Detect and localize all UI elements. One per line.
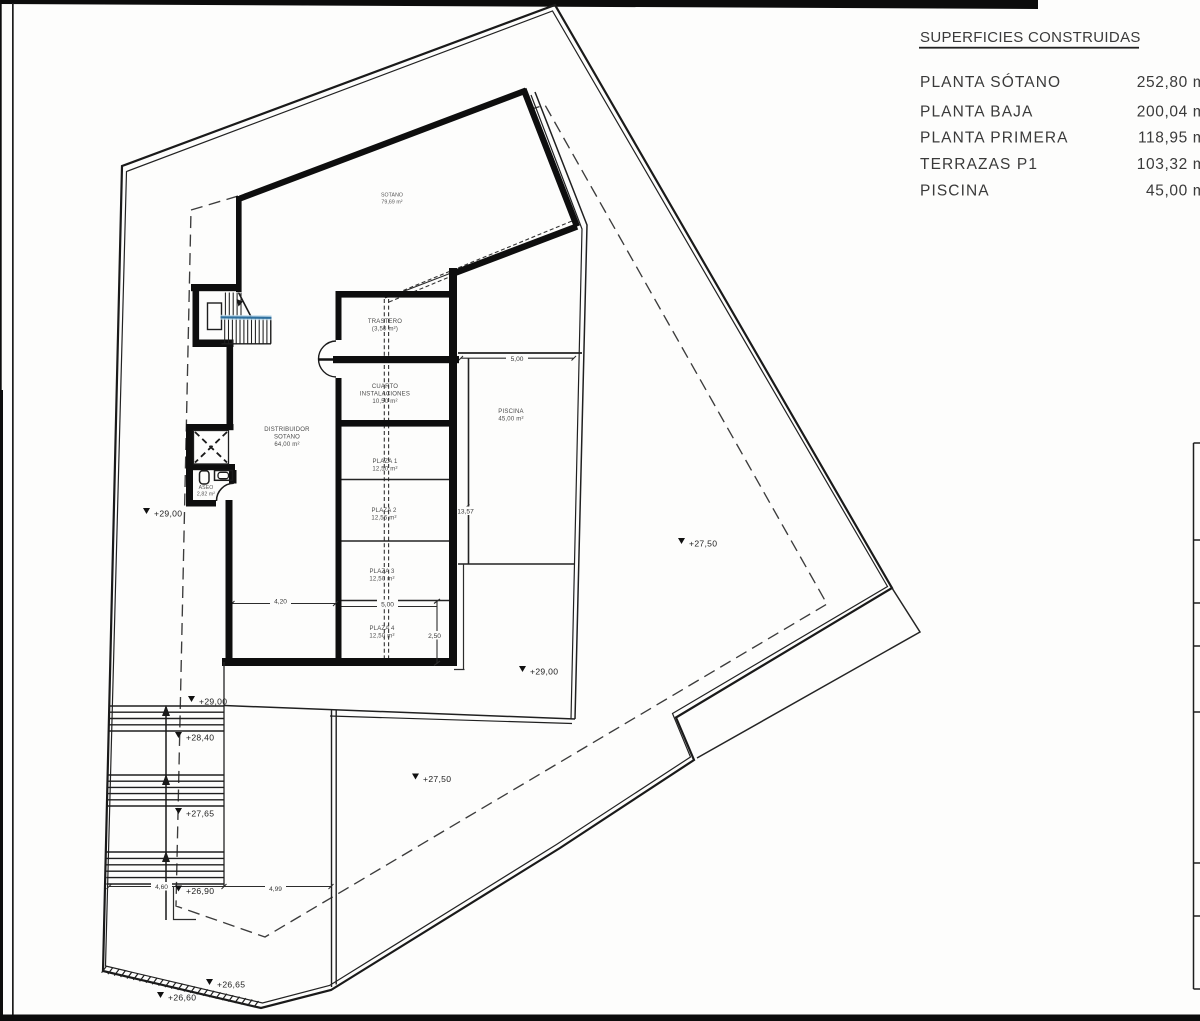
svg-text:45,00 m²: 45,00 m² [1146, 183, 1200, 200]
svg-text:+29,00: +29,00 [154, 509, 182, 519]
svg-text:12,50 m²: 12,50 m² [369, 577, 394, 583]
svg-text:PLANTA PRIMERA: PLANTA PRIMERA [920, 130, 1069, 147]
svg-text:PISCINA: PISCINA [498, 409, 523, 415]
svg-text:4,60: 4,60 [155, 884, 168, 891]
svg-text:PISCINA: PISCINA [920, 183, 990, 200]
svg-text:+27,50: +27,50 [689, 539, 717, 549]
svg-text:5,00: 5,00 [381, 602, 394, 609]
svg-text:+27,50: +27,50 [423, 774, 451, 784]
svg-text:ASEO: ASEO [199, 485, 214, 491]
svg-text:TERRAZAS P1: TERRAZAS P1 [920, 156, 1038, 173]
svg-text:SUPERFICIES CONSTRUIDAS: SUPERFICIES CONSTRUIDAS [920, 29, 1141, 46]
svg-text:+26,65: +26,65 [217, 980, 245, 990]
svg-text:INSTALACIONES: INSTALACIONES [360, 392, 410, 398]
svg-text:12,50 m²: 12,50 m² [369, 634, 394, 640]
svg-text:PLAZA 2: PLAZA 2 [371, 508, 397, 514]
svg-text:TRASTERO: TRASTERO [368, 319, 402, 325]
svg-text:45,00 m²: 45,00 m² [498, 417, 523, 423]
svg-text:4,99: 4,99 [269, 886, 282, 893]
svg-text:118,95 m²: 118,95 m² [1138, 130, 1200, 147]
svg-text:2,82 m²: 2,82 m² [197, 492, 215, 498]
svg-text:DISTRIBUIDOR: DISTRIBUIDOR [264, 427, 310, 433]
svg-text:CUARTO: CUARTO [372, 384, 398, 390]
svg-text:PLANTA BAJA: PLANTA BAJA [920, 104, 1033, 121]
svg-text:SOTANO: SOTANO [381, 193, 403, 199]
svg-text:12,50 m²: 12,50 m² [372, 467, 397, 473]
svg-text:103,32 m²: 103,32 m² [1137, 156, 1200, 173]
svg-text:79,69 m²: 79,69 m² [381, 200, 402, 206]
svg-text:252,80 m²: 252,80 m² [1137, 74, 1200, 91]
svg-text:+29,00: +29,00 [199, 697, 227, 707]
svg-text:4,20: 4,20 [274, 599, 287, 606]
svg-text:PLAZA 4: PLAZA 4 [369, 626, 395, 632]
svg-text:10,50 m²: 10,50 m² [372, 399, 397, 405]
svg-text:PLAZA 1: PLAZA 1 [372, 459, 398, 465]
svg-text:2,50: 2,50 [428, 633, 441, 640]
svg-text:12,56 m²: 12,56 m² [371, 516, 396, 522]
svg-text:64,00 m²: 64,00 m² [274, 442, 299, 448]
svg-text:PLANTA SÓTANO: PLANTA SÓTANO [920, 74, 1061, 91]
svg-text:+27,65: +27,65 [186, 809, 214, 819]
svg-text:+26,60: +26,60 [168, 993, 196, 1003]
svg-text:+29,00: +29,00 [530, 667, 558, 677]
svg-text:PLAZA 3: PLAZA 3 [369, 569, 395, 575]
svg-text:13,57: 13,57 [457, 509, 474, 516]
svg-text:+28,40: +28,40 [186, 733, 214, 743]
svg-text:5,00: 5,00 [511, 356, 524, 363]
svg-text:200,04 m²: 200,04 m² [1137, 104, 1200, 121]
svg-text:(3,50 m²): (3,50 m²) [372, 327, 398, 333]
svg-text:SOTANO: SOTANO [274, 435, 300, 441]
svg-text:+26,90: +26,90 [186, 886, 214, 896]
